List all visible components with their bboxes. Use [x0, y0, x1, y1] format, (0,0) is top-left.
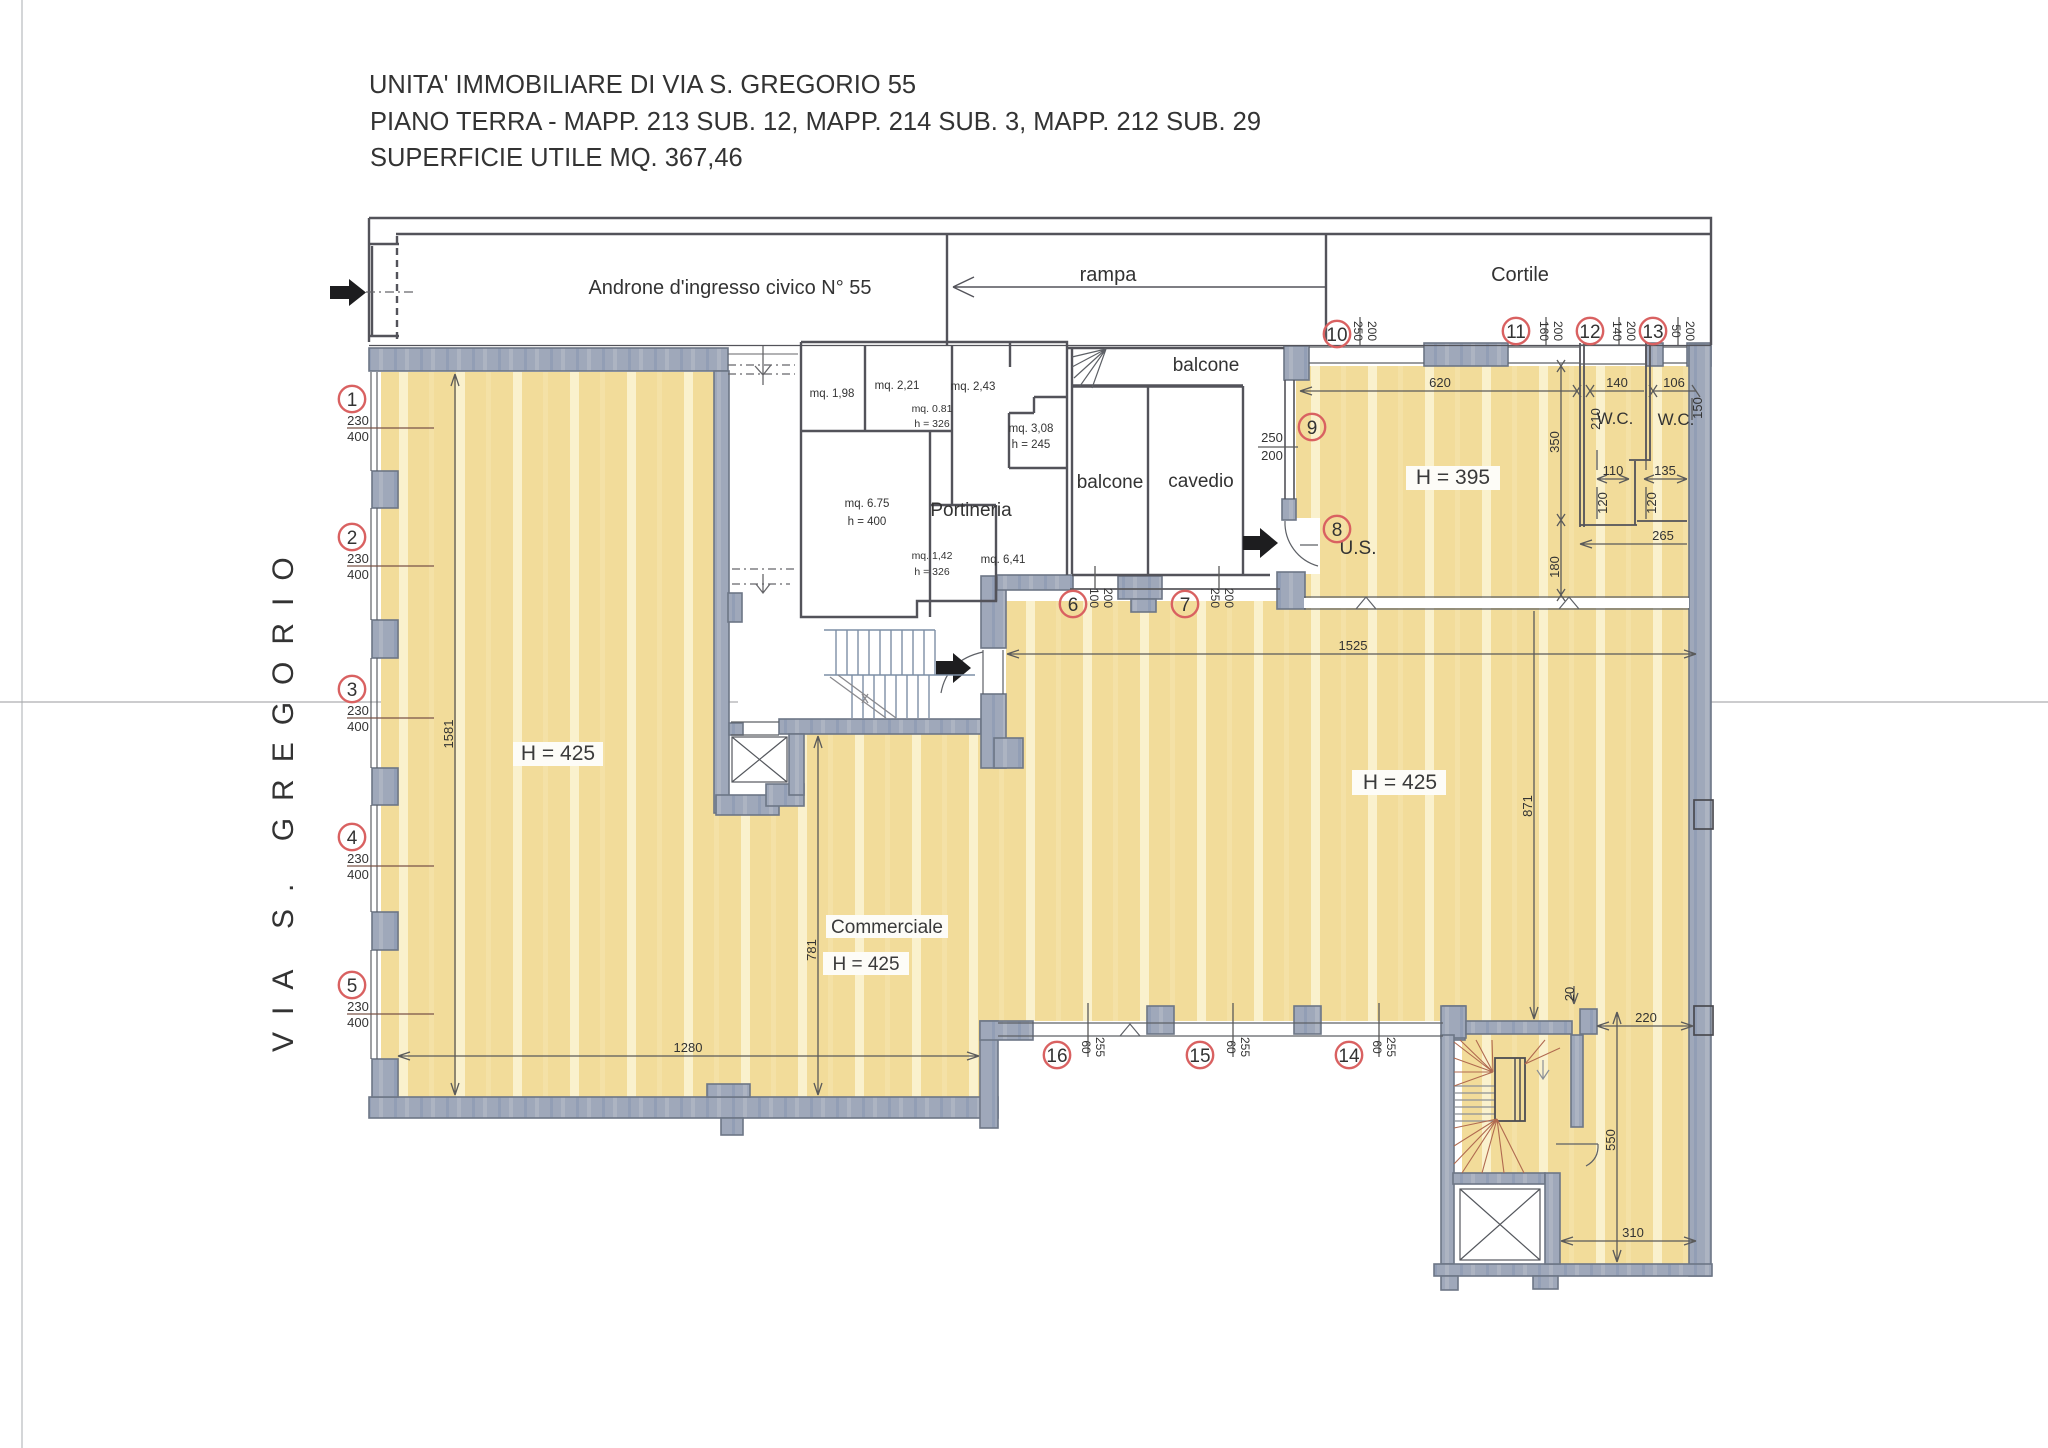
- svg-text:60: 60: [1224, 1040, 1238, 1054]
- svg-text:255: 255: [1093, 1037, 1107, 1057]
- svg-text:H = 425: H = 425: [1363, 771, 1437, 794]
- svg-text:200: 200: [1624, 321, 1638, 341]
- svg-text:310: 310: [1622, 1225, 1644, 1240]
- svg-text:200: 200: [1222, 588, 1236, 608]
- svg-text:9: 9: [1307, 418, 1318, 439]
- svg-text:200: 200: [1261, 448, 1283, 463]
- svg-text:20: 20: [1562, 987, 1577, 1001]
- svg-text:230: 230: [347, 999, 369, 1014]
- svg-text:10: 10: [1326, 325, 1347, 346]
- svg-text:1: 1: [347, 390, 358, 411]
- svg-text:50: 50: [1669, 324, 1683, 338]
- svg-text:11: 11: [1506, 322, 1526, 343]
- svg-text:h = 400: h = 400: [848, 516, 887, 528]
- svg-text:balcone: balcone: [1173, 355, 1240, 376]
- svg-text:230: 230: [347, 851, 369, 866]
- svg-text:550: 550: [1603, 1129, 1618, 1151]
- svg-text:15: 15: [1189, 1046, 1210, 1067]
- svg-text:14: 14: [1338, 1046, 1360, 1067]
- svg-text:200: 200: [1683, 321, 1697, 341]
- svg-text:265: 265: [1652, 528, 1674, 543]
- svg-text:200: 200: [1551, 321, 1565, 341]
- svg-text:13: 13: [1642, 322, 1663, 343]
- svg-text:120: 120: [1644, 492, 1659, 514]
- svg-text:400: 400: [347, 567, 369, 582]
- svg-text:h = 326: h = 326: [914, 418, 949, 430]
- svg-text:2: 2: [347, 528, 358, 549]
- svg-text:H = 425: H = 425: [521, 742, 595, 765]
- svg-text:120: 120: [1595, 492, 1610, 514]
- svg-text:200: 200: [1101, 588, 1115, 608]
- svg-text:1280: 1280: [674, 1040, 703, 1055]
- svg-text:12: 12: [1579, 322, 1600, 343]
- svg-text:mq. 6.75: mq. 6.75: [845, 498, 890, 510]
- svg-text:H = 425: H = 425: [832, 954, 899, 975]
- svg-text:mq. 2,43: mq. 2,43: [951, 381, 996, 393]
- svg-text:Commerciale: Commerciale: [831, 917, 943, 938]
- svg-text:781: 781: [804, 939, 819, 961]
- svg-text:cavedio: cavedio: [1168, 471, 1234, 492]
- svg-text:106: 106: [1663, 375, 1685, 390]
- svg-text:h = 326: h = 326: [914, 566, 949, 578]
- svg-text:mq. 2,21: mq. 2,21: [875, 380, 920, 392]
- svg-text:60: 60: [1370, 1040, 1384, 1054]
- svg-text:Cortile: Cortile: [1491, 264, 1549, 286]
- svg-text:350: 350: [1547, 431, 1562, 453]
- svg-text:400: 400: [347, 1015, 369, 1030]
- svg-text:balcone: balcone: [1077, 472, 1144, 493]
- svg-text:6: 6: [1068, 595, 1079, 616]
- svg-text:871: 871: [1520, 795, 1535, 817]
- svg-text:W.C.: W.C.: [1658, 410, 1695, 429]
- svg-text:230: 230: [347, 413, 369, 428]
- svg-text:3: 3: [347, 680, 358, 701]
- svg-text:4: 4: [347, 828, 358, 849]
- svg-text:140: 140: [1606, 375, 1628, 390]
- svg-text:100: 100: [1087, 588, 1101, 608]
- svg-text:h = 245: h = 245: [1012, 439, 1051, 451]
- svg-text:SUPERFICIE UTILE MQ. 367,46: SUPERFICIE UTILE MQ. 367,46: [370, 144, 743, 172]
- svg-text:110: 110: [1603, 463, 1624, 478]
- svg-text:180: 180: [1547, 556, 1562, 578]
- svg-text:mq. 1,42: mq. 1,42: [912, 550, 953, 562]
- svg-text:250: 250: [1351, 321, 1365, 341]
- svg-text:mq. 0.81: mq. 0.81: [912, 403, 953, 415]
- svg-text:PIANO TERRA - MAPP. 213 SUB. 1: PIANO TERRA - MAPP. 213 SUB. 12, MAPP. 2…: [370, 108, 1261, 136]
- svg-text:230: 230: [347, 551, 369, 566]
- svg-text:mq. 1,98: mq. 1,98: [810, 388, 855, 400]
- svg-text:16: 16: [1046, 1046, 1067, 1067]
- svg-text:H = 395: H = 395: [1416, 466, 1490, 489]
- svg-text:8: 8: [1332, 520, 1343, 541]
- svg-text:Portineria: Portineria: [930, 500, 1012, 521]
- svg-text:W.C.: W.C.: [1597, 409, 1634, 428]
- svg-text:250: 250: [1208, 588, 1222, 608]
- svg-text:160: 160: [1537, 321, 1551, 341]
- svg-text:255: 255: [1384, 1037, 1398, 1057]
- svg-text:UNITA' IMMOBILIARE DI VIA S. G: UNITA' IMMOBILIARE DI VIA S. GREGORIO 55: [369, 71, 916, 99]
- svg-text:140: 140: [1610, 321, 1624, 341]
- svg-text:1525: 1525: [1339, 638, 1368, 653]
- svg-text:400: 400: [347, 429, 369, 444]
- svg-text:U.S.: U.S.: [1340, 538, 1377, 559]
- svg-text:60: 60: [1079, 1040, 1093, 1054]
- svg-text:VIA S. GREGORIO: VIA S. GREGORIO: [267, 540, 300, 1052]
- svg-text:mq. 6,41: mq. 6,41: [981, 554, 1026, 566]
- svg-text:Androne d'ingresso civico N° 5: Androne d'ingresso civico N° 55: [588, 277, 871, 299]
- svg-text:135: 135: [1654, 463, 1676, 478]
- svg-text:255: 255: [1238, 1037, 1252, 1057]
- svg-text:230: 230: [347, 703, 369, 718]
- svg-text:7: 7: [1180, 595, 1191, 616]
- svg-text:400: 400: [347, 719, 369, 734]
- svg-text:400: 400: [347, 867, 369, 882]
- svg-text:620: 620: [1429, 375, 1451, 390]
- svg-text:mq. 3,08: mq. 3,08: [1009, 423, 1054, 435]
- svg-text:5: 5: [347, 976, 358, 997]
- svg-text:rampa: rampa: [1080, 264, 1138, 286]
- svg-text:250: 250: [1261, 430, 1283, 445]
- svg-text:1581: 1581: [441, 720, 456, 749]
- svg-text:220: 220: [1635, 1010, 1657, 1025]
- svg-text:200: 200: [1365, 321, 1379, 341]
